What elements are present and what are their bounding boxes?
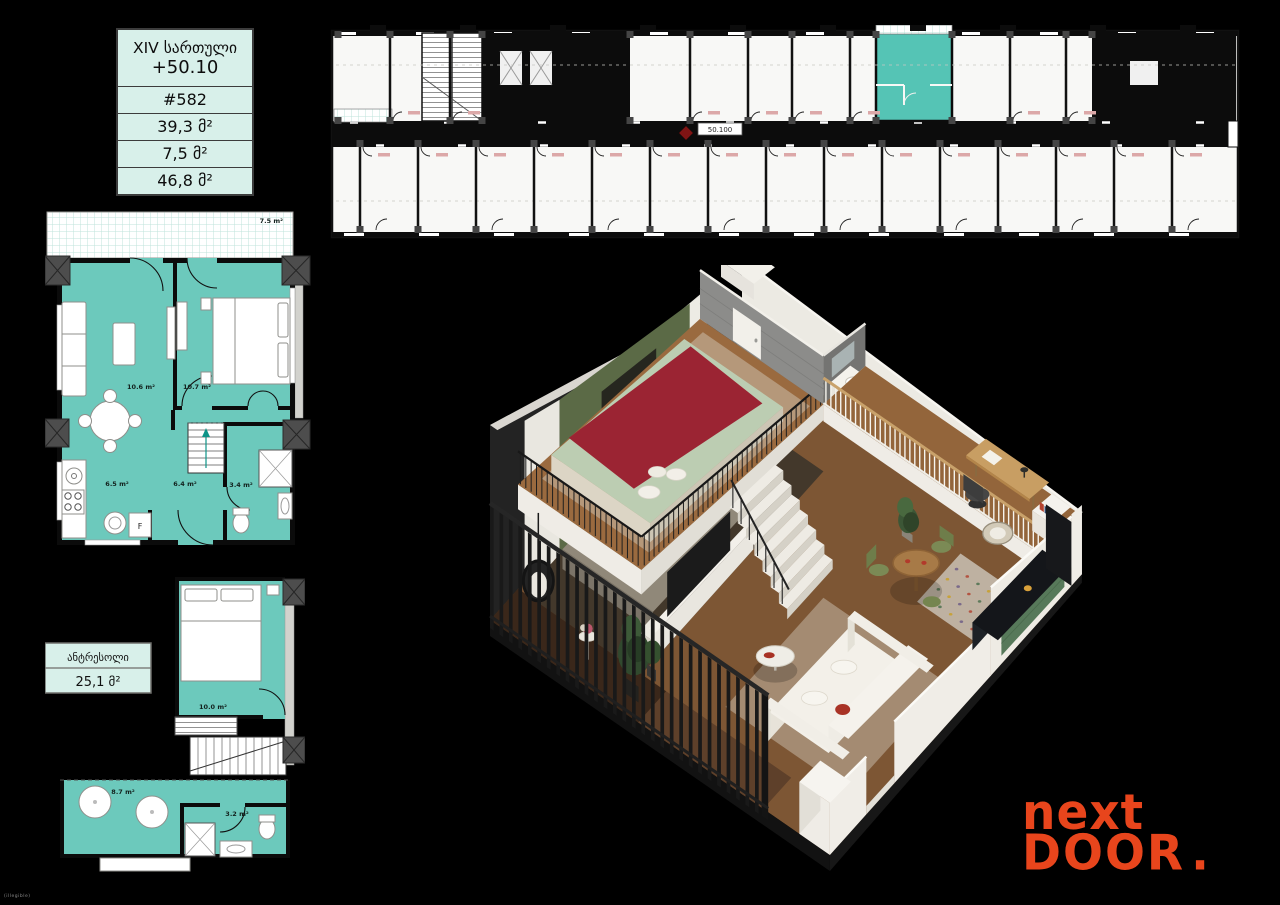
living-area-label: 10.6 m² xyxy=(127,383,155,391)
bedroom-area-label: 10.7 m² xyxy=(183,383,211,391)
building-key-plan: 50.100 xyxy=(330,25,1242,243)
parapet xyxy=(100,858,190,871)
brand-logo-line2: DOOR. xyxy=(1022,833,1222,874)
mezzanine-label-box: ანტრესოლი 25,1 მ² xyxy=(45,643,151,693)
hall-area-label: 6.4 m² xyxy=(173,480,197,488)
mezz-wardrobe xyxy=(175,717,237,735)
plan-sheet: { "colors": { "background": "#000000", "… xyxy=(0,0,1280,905)
key-plan-elevation-label: 50.100 xyxy=(708,126,733,134)
elevation-label: +50.10 xyxy=(118,57,252,78)
fridge-label: F xyxy=(138,522,143,531)
floor-label: XIV სართული xyxy=(118,39,252,57)
unit-info-table: XIV სართული +50.10 #582 39,3 მ² 7,5 მ² 4… xyxy=(116,28,254,196)
key-plan-body: 50.100 xyxy=(332,25,1238,237)
sofa xyxy=(62,302,86,396)
mezz-sink xyxy=(220,841,252,857)
left-balcony-hatch xyxy=(334,109,392,122)
coffee-table xyxy=(113,323,135,365)
mezz-lounge-area-label: 8.7 m² xyxy=(111,788,135,796)
bath-sink xyxy=(278,493,292,519)
brand-logo: next DOOR. xyxy=(1022,792,1222,874)
kitchen-area-label: 6.5 m² xyxy=(105,480,129,488)
mezz-bathroom-area-label: 3.2 m² xyxy=(225,810,249,818)
bathroom-area-label: 3.4 m² xyxy=(229,481,253,489)
area-balcony: 7,5 მ² xyxy=(118,140,252,167)
main-plan-balcony: 7.5 m² xyxy=(47,212,293,258)
mezz-bedroom-area-label: 10.0 m² xyxy=(199,703,227,711)
highlighted-unit xyxy=(876,33,952,121)
main-plan-stairs xyxy=(188,423,224,473)
logo-dot: . xyxy=(1191,833,1211,874)
floor-row: XIV სართული +50.10 xyxy=(118,30,252,86)
wardrobe xyxy=(177,302,187,350)
mezzanine-title: ანტრესოლი xyxy=(67,652,129,664)
mezzanine-total-area: 25,1 მ² xyxy=(75,675,120,690)
balcony-area-label: 7.5 m² xyxy=(260,217,284,225)
area-living: 39,3 მ² xyxy=(118,113,252,140)
area-total: 46,8 მ² xyxy=(118,167,252,194)
toilet xyxy=(233,513,249,533)
right-core xyxy=(1092,33,1236,121)
dining-table xyxy=(90,401,130,441)
washer xyxy=(104,512,126,534)
mezzanine-plan: ანტრესოლი 25,1 მ² xyxy=(45,565,305,890)
corridor xyxy=(332,121,1238,147)
unit-number: #582 xyxy=(118,86,252,113)
main-floor-plan: 7.5 m² xyxy=(45,210,320,552)
fine-print: (illegible) xyxy=(4,894,31,899)
tv-unit xyxy=(167,307,175,359)
